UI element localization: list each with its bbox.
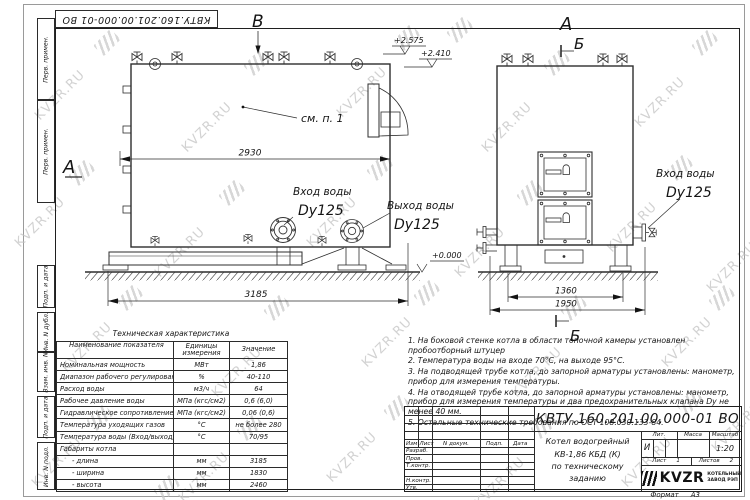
stamp-perv-primen-1: Перв. примен. — [37, 18, 55, 100]
stamp-podp-data-1: Подп. и дата — [37, 265, 55, 308]
title-block: Изм Лист N докум. Подп. Дата Разраб. Про… — [404, 406, 742, 492]
spec-table: Наименование показателя Единицыизмерения… — [56, 341, 288, 492]
spec-row-name: Номинальная мощность — [57, 358, 174, 370]
section-label-b-top: Б — [574, 35, 584, 53]
tb-scale-label: Масштаб — [709, 431, 741, 439]
note-3: 3. На подводящей трубе котла, до запорно… — [408, 367, 738, 386]
spec-row-name: Гидравлическое сопротивление котла — [57, 406, 174, 418]
note-2: 2. Температура воды на входе 70°С, на вы… — [408, 356, 738, 366]
drawing-sheet: KVZR.RUKVZR.RUKVZR.RUKVZR.RUKVZR.RUKVZR.… — [0, 0, 750, 500]
elevation-top-high: +2.575 — [394, 36, 424, 45]
water-inlet-left-dn: Dy125 — [298, 203, 344, 219]
boiler-side-view — [103, 52, 408, 270]
water-inlet-right-dn: Dy125 — [666, 185, 712, 201]
tb-row-tkontr: Т.контр. — [406, 463, 430, 469]
tb-product-name: Котел водогрейный КВ-1,86 КБД (К) по тех… — [534, 431, 641, 491]
dim-overall-length: 3185 — [245, 290, 268, 300]
tb-col-list: Лист — [420, 441, 434, 447]
water-outlet-label: Выход воды — [387, 200, 454, 212]
see-note-label: см. п. 1 — [301, 112, 344, 125]
spec-row-name: - длина — [57, 455, 174, 467]
spec-row-name: Температура воды (Вход/выход) — [57, 431, 174, 443]
spec-col-value: Значение — [230, 342, 287, 358]
tb-col-ndoc: N докум. — [443, 441, 469, 447]
stamp-inv-dubl: Инв. N дубл. — [37, 312, 55, 352]
kvzr-logo-text: KVZR — [660, 470, 705, 486]
tb-row-prov: Пров. — [406, 456, 422, 462]
spec-row-name: Диапазон рабочего регулирования — [57, 370, 174, 382]
water-inlet-right-label: Вход воды — [656, 168, 715, 180]
spec-row-name: Рабочее давление воды — [57, 394, 174, 406]
company-logo: KVZR КОТЕЛЬНЫЙ ЗАВОД РЭП — [641, 465, 741, 491]
view-label-a-left: А — [62, 157, 75, 178]
ground-left — [85, 272, 420, 281]
tb-row-nkontr: Н.контр. — [406, 478, 431, 484]
format-strip: Формат А3 — [600, 491, 730, 499]
tb-col-podp: Подп. — [486, 441, 503, 447]
tb-col-data: Дата — [513, 441, 527, 447]
stamp-inv-podl: Инв. N подл. — [37, 442, 55, 490]
tb-scale-value: 1:20 — [709, 439, 741, 457]
tb-row-razrab: Разраб. — [406, 448, 428, 454]
label-graphics — [65, 31, 680, 327]
format-value: А3 — [691, 491, 700, 499]
boiler-front-view — [477, 54, 656, 271]
view-label-a-right: А — [559, 14, 572, 35]
spec-table-title: Техническая характеристика — [56, 329, 286, 338]
elevation-top-low: +2.410 — [421, 49, 451, 58]
elevation-ground: +0.000 — [432, 251, 462, 260]
dim-front-width: 1360 — [555, 287, 577, 297]
spec-row-name: - высота — [57, 479, 174, 491]
water-inlet-left-label: Вход воды — [293, 186, 352, 198]
format-label: Формат — [650, 491, 678, 499]
tb-doc-number: КВТУ.160.201.00.000-01 ВО — [534, 407, 741, 431]
kvzr-logo-icon — [641, 471, 657, 486]
tb-lit-label: Лит. — [641, 431, 677, 439]
view-label-b-top: В — [252, 12, 264, 32]
tb-sheet: Лист1 — [641, 457, 691, 465]
water-outlet-dn: Dy125 — [394, 217, 440, 233]
stamp-podp-data-2: Подп. и дата — [37, 396, 55, 438]
tb-col-izm: Изм — [406, 441, 417, 447]
spec-col-units: Единицыизмерения — [174, 342, 230, 358]
stamp-vzam-inv: Взам. инв. N — [37, 352, 55, 392]
tb-row-utv: Утв. — [406, 485, 418, 491]
ground-right — [478, 272, 658, 281]
spec-row-name: Расход воды — [57, 382, 174, 394]
tb-sheets: Листов2 — [691, 457, 741, 465]
dim-inner-length: 2930 — [239, 149, 262, 159]
spec-row-name: Температура уходящих газов — [57, 418, 174, 430]
elevation-marks — [383, 46, 464, 272]
spec-col-name: Наименование показателя — [57, 342, 174, 358]
doc-number-rotated: КВТУ.160.201.00.000-01 ВО — [62, 14, 210, 25]
dim-front-overall: 1950 — [555, 300, 577, 310]
spec-row-name: Габариты котла — [57, 443, 174, 455]
company-name: КОТЕЛЬНЫЙ ЗАВОД РЭП — [707, 472, 741, 483]
tb-mass-label: Масса — [677, 431, 709, 439]
spec-row-name: - ширина — [57, 467, 174, 479]
stamp-perv-primen-2: Перв. примен. — [37, 100, 55, 203]
doc-number-topleft-box: КВТУ.160.201.00.000-01 ВО — [55, 10, 218, 28]
tb-lit-value: И — [641, 439, 653, 457]
note-1: 1. На боковой стенке котла в области топ… — [408, 336, 738, 355]
